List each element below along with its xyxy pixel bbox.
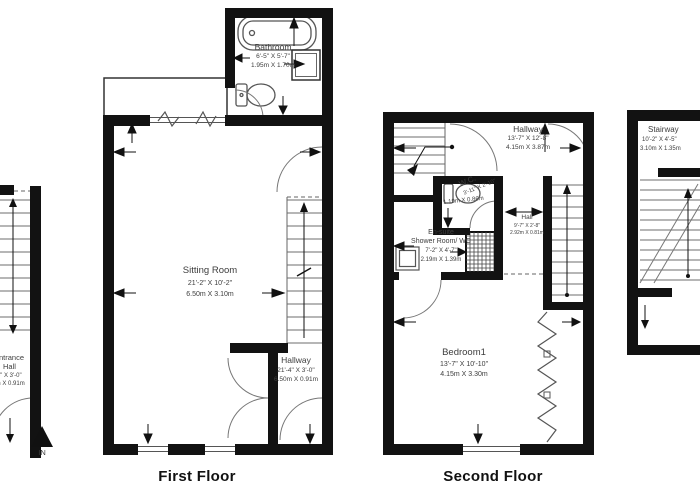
en-suite-dims-m: 2.19m X 1.39m [421, 257, 462, 263]
en-suite-label-line2: Shower Room/ WC [411, 238, 471, 245]
hallway-dims-m: 6.50m X 0.91m [274, 377, 318, 384]
sitting-room-label: Sitting Room [183, 266, 237, 276]
hallway2-dims-m: 4.15m X 3.87m [506, 145, 550, 152]
bathroom-label: Bathroom [255, 43, 292, 52]
stair-dimension-arrow [9, 198, 17, 334]
hall-dims-ft: 9'-7" X 2'-8" [514, 224, 540, 229]
sink-icon [396, 247, 419, 270]
en-suite-label: En-suite [428, 229, 454, 236]
stairs [394, 128, 583, 295]
door-swing-arc [0, 398, 33, 438]
hallway2-label: Hallway [513, 125, 543, 134]
entrance-hall-dims-m: 6.50m X 0.91m [0, 381, 25, 387]
entry-in-label: IN [38, 449, 46, 457]
bedroom1-dims-m: 4.15m X 3.30m [440, 371, 487, 378]
second-floor-title: Second Floor [443, 468, 542, 485]
stair-winder-lines [640, 184, 700, 283]
second-floor-plan [383, 112, 594, 455]
stairs-direction-arrow [407, 145, 454, 176]
hallway2-dims-ft: 13'-7" X 12'-8" [507, 136, 548, 143]
toilet-icon [236, 84, 275, 106]
sitting-room-dims-ft: 21'-2" X 10'-2" [188, 280, 232, 287]
stairs [0, 200, 30, 330]
stairway-label: Stairway [648, 126, 700, 134]
hallway-label: Hallway [281, 356, 311, 365]
bathroom-dims-m: 1.95m X 1.70m [251, 63, 295, 70]
hallway-dims-ft: 21'-4" X 3'-0" [277, 368, 314, 375]
entrance-hall-dims-ft: 21'-4" X 3'-0" [0, 373, 22, 379]
en-suite-dims-ft: 7'-2" X 4'-7" [425, 248, 456, 254]
bedroom1-label: Bedroom1 [442, 348, 486, 358]
stairway-dims-ft: 10'-2" X 4'-5" [642, 137, 700, 143]
entrance-hall-label: Entrance [0, 354, 24, 362]
first-floor-plan [103, 8, 333, 455]
first-floor-title: First Floor [158, 468, 235, 485]
sitting-room-dims-m: 6.50m X 3.10m [186, 291, 233, 298]
window-zigzag [538, 312, 556, 442]
ground-floor-plan [0, 185, 53, 458]
stairs-up-arrow-icon [684, 188, 692, 278]
down-arrow-icon [6, 418, 14, 443]
bedroom1-dims-ft: 13'-7" X 10'-10" [440, 361, 488, 368]
hall-label: Hall [521, 215, 532, 222]
stairway-dims-m: 3.10m X 1.35m [640, 146, 700, 152]
wall [103, 8, 333, 455]
down-arrow-icon [641, 305, 649, 329]
floorplan-drawing [0, 0, 700, 500]
floorplan-page: Entrance Hall 21'-4" X 3'-0" 6.50m X 0.9… [0, 0, 700, 500]
entrance-hall-label-line2: Hall [3, 363, 16, 371]
window [463, 444, 520, 455]
hall-dims-m: 2.92m X 0.81m [510, 231, 544, 236]
bathroom-dims-ft: 6'-5" X 5'-7" [256, 54, 290, 61]
